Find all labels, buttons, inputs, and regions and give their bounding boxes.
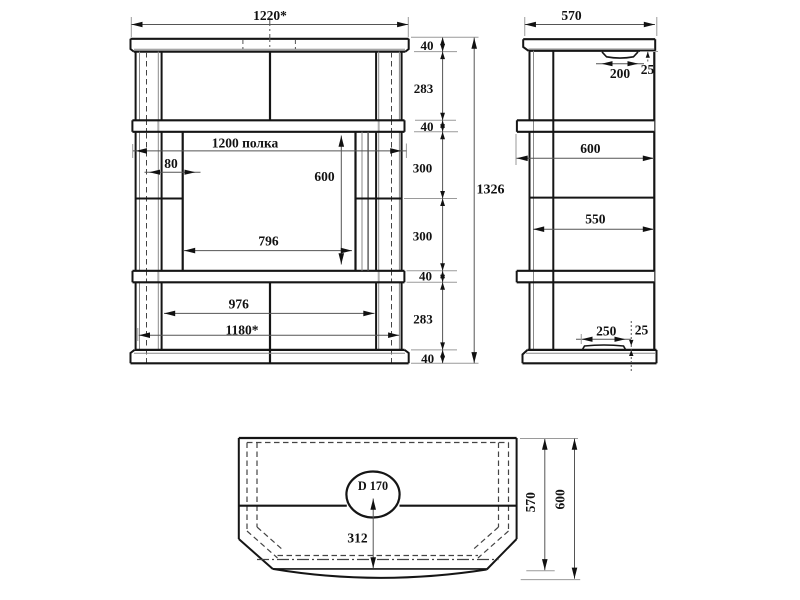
svg-text:200: 200 <box>610 66 631 81</box>
svg-text:1200 полка: 1200 полка <box>212 136 279 151</box>
svg-text:570: 570 <box>561 8 582 23</box>
svg-text:600: 600 <box>580 141 601 156</box>
svg-text:25: 25 <box>635 323 649 338</box>
svg-text:300: 300 <box>413 161 433 176</box>
svg-text:40: 40 <box>421 119 434 134</box>
svg-text:600: 600 <box>314 169 335 184</box>
svg-text:976: 976 <box>229 297 250 312</box>
svg-text:40: 40 <box>419 269 432 284</box>
svg-text:40: 40 <box>421 38 434 53</box>
svg-text:1220*: 1220* <box>253 8 287 23</box>
svg-text:25: 25 <box>641 62 655 77</box>
svg-text:300: 300 <box>413 228 433 243</box>
svg-text:796: 796 <box>258 234 279 249</box>
svg-text:1326: 1326 <box>477 183 505 198</box>
svg-text:250: 250 <box>596 324 617 339</box>
svg-text:1180*: 1180* <box>225 322 258 337</box>
svg-text:80: 80 <box>164 156 178 171</box>
svg-text:40: 40 <box>421 351 434 366</box>
svg-text:312: 312 <box>347 531 368 546</box>
svg-text:570: 570 <box>523 492 538 513</box>
svg-text:283: 283 <box>414 81 434 96</box>
svg-text:600: 600 <box>553 489 568 510</box>
svg-text:550: 550 <box>585 212 606 227</box>
svg-text:283: 283 <box>413 312 433 327</box>
svg-text:D 170: D 170 <box>358 479 388 493</box>
